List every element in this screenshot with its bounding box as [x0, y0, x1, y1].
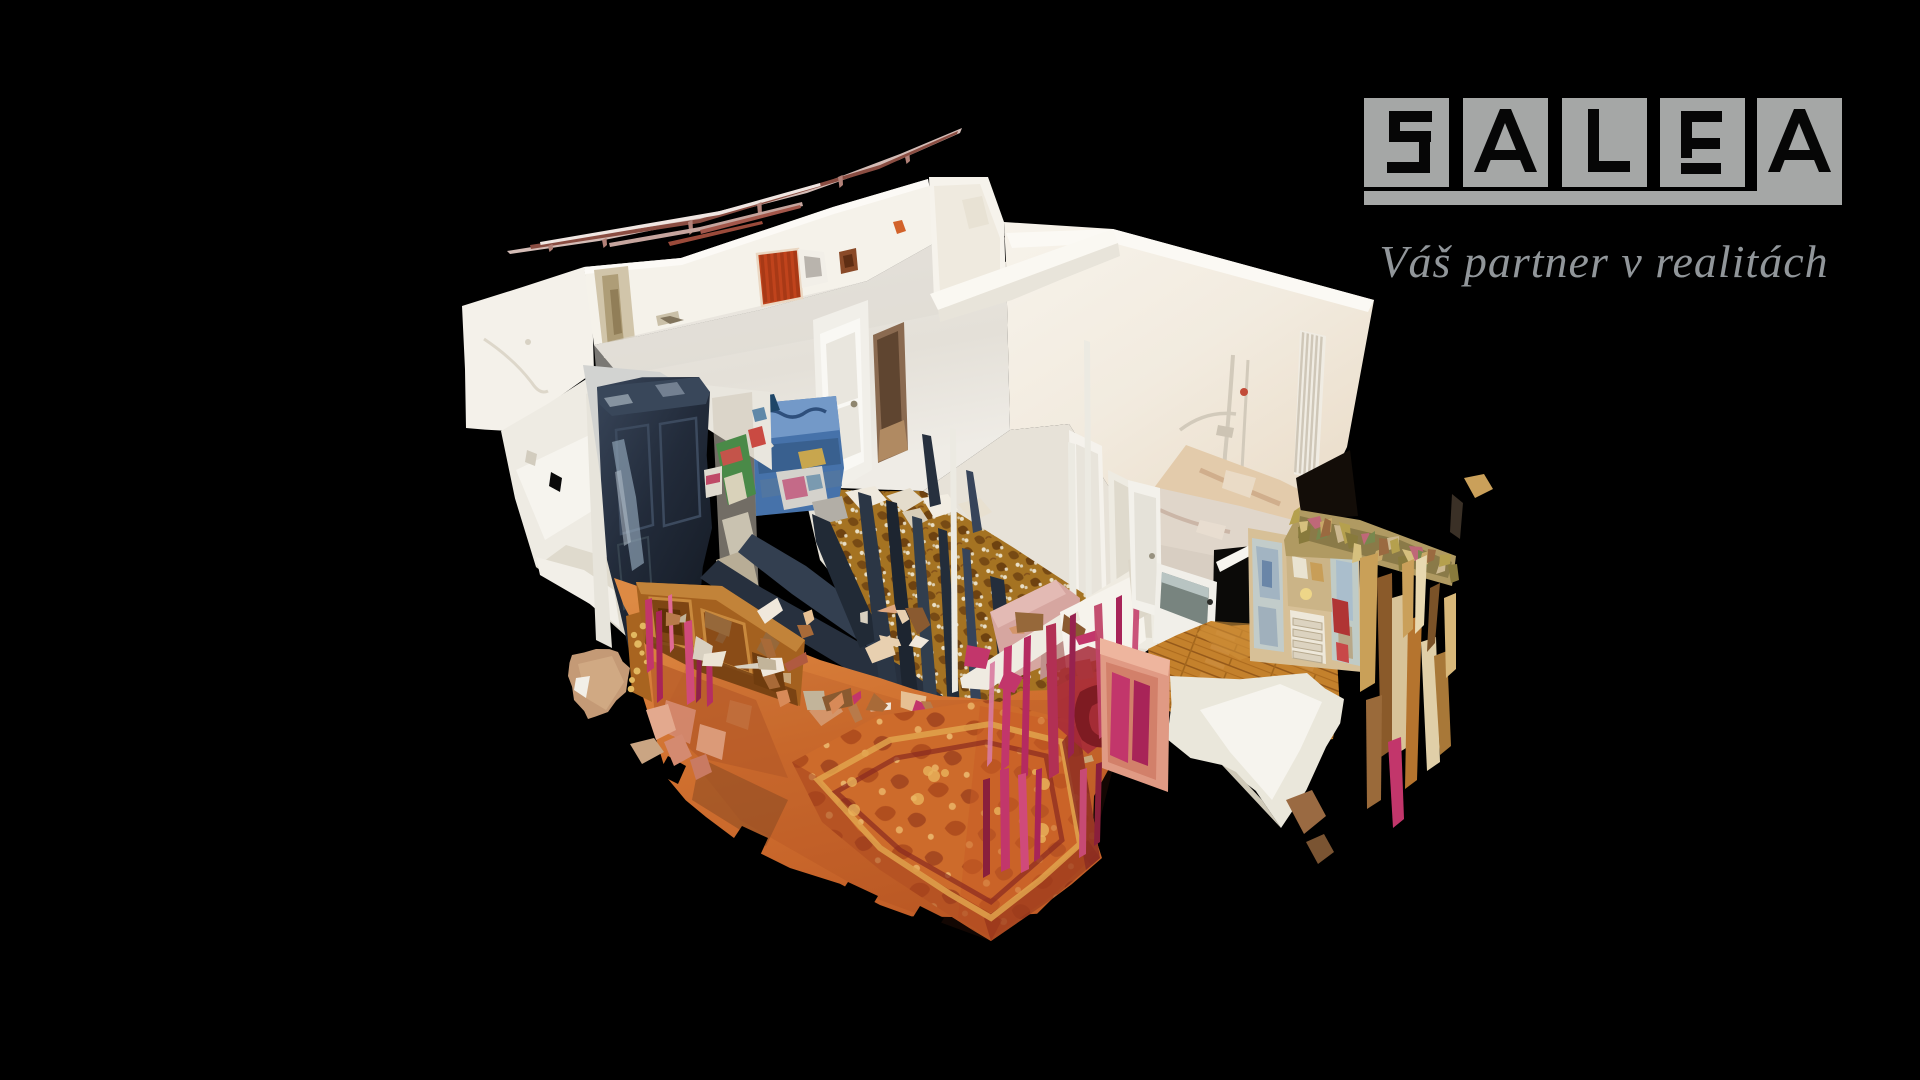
svg-text:Váš partner v realitách: Váš partner v realitách [1379, 236, 1828, 287]
